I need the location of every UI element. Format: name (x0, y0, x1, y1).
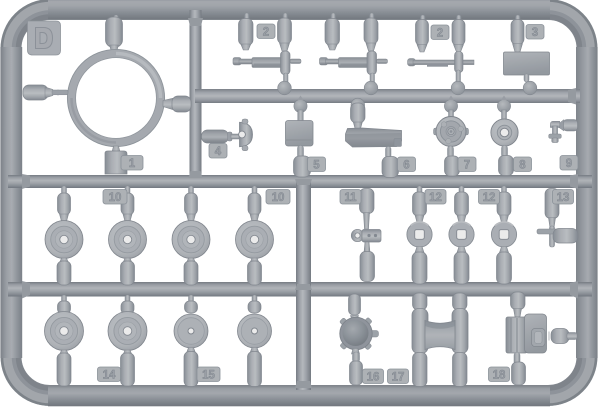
svg-text:9: 9 (566, 158, 572, 170)
svg-text:4: 4 (215, 146, 222, 158)
svg-text:17: 17 (392, 371, 405, 383)
svg-text:6: 6 (403, 159, 409, 171)
svg-text:1: 1 (129, 158, 136, 170)
svg-text:13: 13 (557, 192, 570, 204)
svg-text:15: 15 (202, 369, 215, 381)
svg-text:5: 5 (313, 159, 320, 171)
svg-text:12: 12 (429, 192, 442, 204)
svg-text:2: 2 (263, 26, 269, 38)
svg-text:18: 18 (493, 369, 506, 381)
svg-text:2: 2 (437, 27, 443, 39)
svg-text:10: 10 (109, 192, 122, 204)
svg-text:14: 14 (103, 369, 116, 381)
svg-text:7: 7 (464, 159, 470, 171)
svg-text:10: 10 (272, 192, 285, 204)
svg-text:16: 16 (367, 371, 380, 383)
svg-text:12: 12 (483, 192, 496, 204)
svg-text:11: 11 (344, 192, 357, 204)
svg-text:8: 8 (519, 159, 526, 171)
svg-text:3: 3 (532, 27, 538, 39)
